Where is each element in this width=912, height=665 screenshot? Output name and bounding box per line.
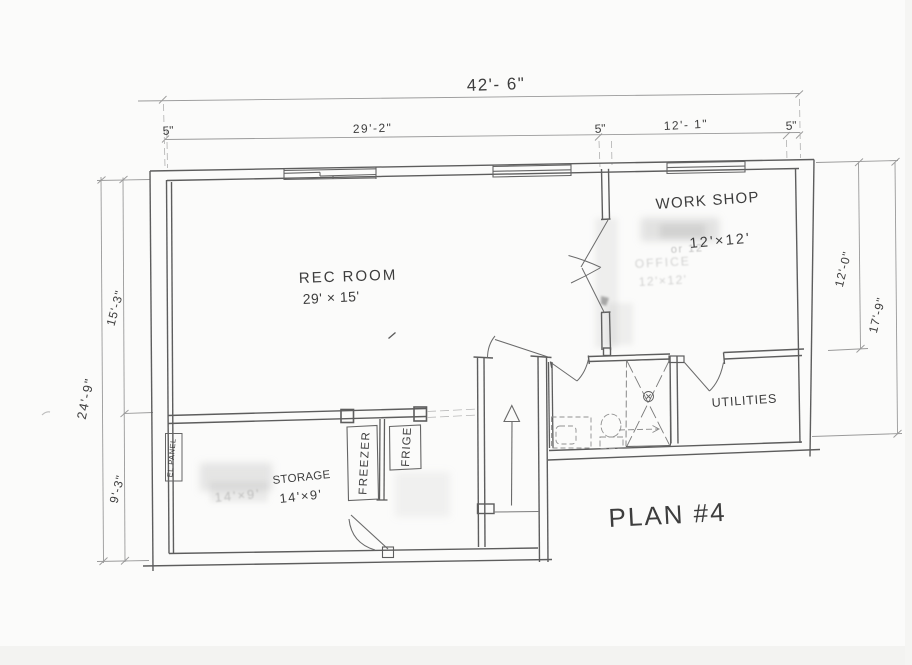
svg-text:OFFICE: OFFICE — [634, 254, 691, 271]
svg-text:29'-2": 29'-2" — [353, 121, 393, 136]
svg-text:12'×12': 12'×12' — [638, 272, 687, 289]
svg-text:REC ROOM: REC ROOM — [299, 267, 398, 287]
svg-text:5": 5" — [162, 123, 174, 138]
svg-text:PLAN #4: PLAN #4 — [608, 497, 727, 533]
svg-text:42'- 6": 42'- 6" — [466, 74, 525, 95]
svg-text:5": 5" — [785, 118, 797, 133]
svg-text:29' × 15': 29' × 15' — [302, 288, 360, 307]
svg-text:12'- 1": 12'- 1" — [663, 117, 708, 133]
svg-text:5": 5" — [594, 121, 606, 136]
svg-text:FRIGE: FRIGE — [400, 426, 414, 467]
